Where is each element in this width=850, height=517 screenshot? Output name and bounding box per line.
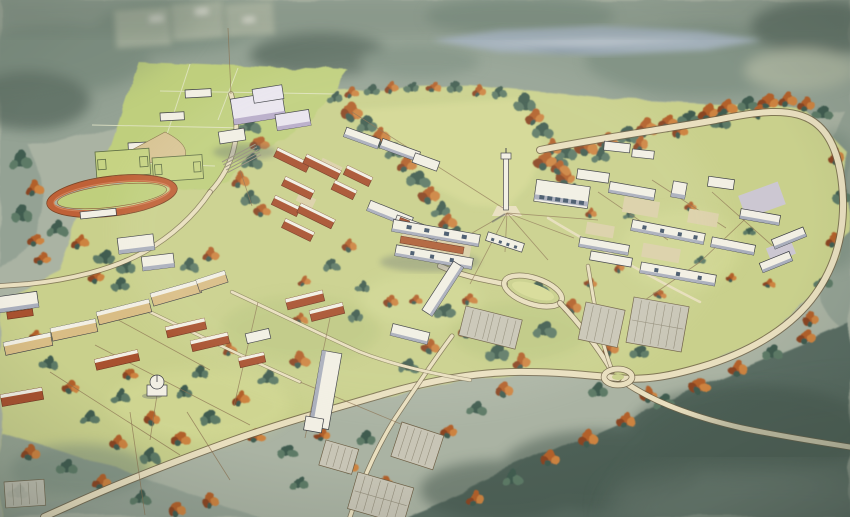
campus-plan-illustration <box>0 0 850 517</box>
photo-vignette <box>0 0 850 517</box>
watercolor-campus-map <box>0 0 850 517</box>
